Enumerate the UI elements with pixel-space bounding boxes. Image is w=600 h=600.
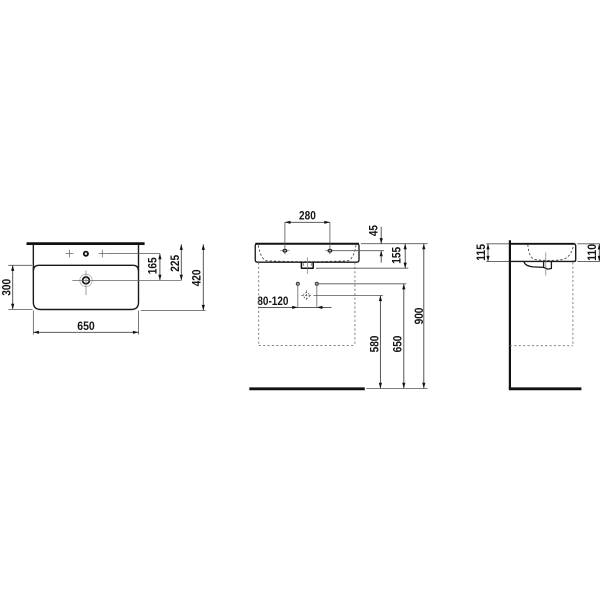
svg-text:155: 155 xyxy=(390,247,404,264)
svg-text:650: 650 xyxy=(77,319,95,333)
svg-text:650: 650 xyxy=(391,335,405,352)
svg-text:45: 45 xyxy=(367,225,381,236)
svg-text:80-120: 80-120 xyxy=(257,294,288,308)
svg-text:165: 165 xyxy=(146,257,160,274)
svg-text:110: 110 xyxy=(585,244,599,261)
svg-text:280: 280 xyxy=(299,209,316,223)
svg-text:225: 225 xyxy=(168,255,182,272)
svg-text:300: 300 xyxy=(0,279,14,296)
svg-text:420: 420 xyxy=(190,269,204,286)
svg-text:580: 580 xyxy=(368,335,382,352)
svg-text:115: 115 xyxy=(474,244,488,261)
svg-text:900: 900 xyxy=(412,307,426,324)
